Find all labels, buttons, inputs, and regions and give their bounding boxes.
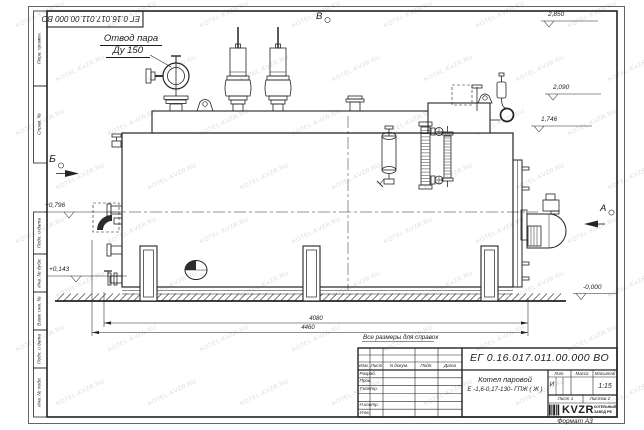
drawing-page: KOTEL-KVZR.RUKOTEL-KVZR.RUKOTEL-KVZR.RUK…: [0, 0, 644, 430]
side-label-6: Инв. № подл.: [38, 377, 43, 407]
safety-valve-2: [265, 27, 291, 111]
burner: [521, 194, 566, 248]
stamp-top-number: ЕГ 0.16.017.011.00.000 ВО: [50, 14, 140, 22]
lifting-lug-left: [197, 100, 213, 112]
kvzr-logo-sub2: ЗАВОД РФ: [594, 411, 612, 415]
elevation-2850: 2,850: [548, 12, 564, 19]
side-label-4: Взам. инв. №: [38, 296, 43, 326]
col-data: Дата: [438, 364, 462, 369]
mass-header: Масса: [571, 372, 593, 376]
side-label-3: Инв. № дубл.: [38, 258, 43, 288]
left-wall-fittings: [93, 134, 122, 285]
elevation-0143: +0,143: [49, 267, 69, 274]
side-label-5: Подп. и дата: [38, 334, 43, 364]
row-nkontr: Н.контр.: [360, 403, 379, 408]
level-gauge-2: [442, 126, 453, 187]
boiler-shell: [108, 116, 538, 294]
kvzr-logo-text: KVZR: [562, 405, 594, 416]
lit-value: И: [548, 382, 556, 389]
support-legs: [140, 246, 498, 301]
title-doc-number: ЕГ 0.16.017.011.00.000 ВО: [464, 353, 615, 364]
view-label-a: А: [600, 204, 606, 214]
view-label-b: Б: [49, 154, 56, 165]
row-prov: Пров.: [360, 379, 372, 384]
steam-outlet-label-line1: Отвод пара: [100, 34, 162, 46]
steam-outlet-valve: [146, 55, 189, 111]
scale-value: 1:15: [593, 383, 617, 390]
sheet-number: Лист 1: [548, 397, 583, 402]
reference-note: Все размеры для справок: [363, 335, 438, 341]
side-label-2: Подп. и дата: [38, 218, 43, 248]
elevation-0796: +0,796: [45, 203, 65, 210]
row-razrab: Разраб.: [360, 372, 377, 377]
kvzr-logo-sub1: КОТЕЛЬНЫЙ: [594, 406, 616, 410]
boiler-drawing: [0, 0, 644, 430]
product-name: Котел паровой: [463, 376, 547, 384]
sheets-total: Листов 2: [583, 397, 617, 402]
elevation-1746: 1,746: [541, 117, 557, 124]
side-label-1: Справ. №: [38, 113, 43, 135]
col-ndoc: N докум.: [383, 364, 415, 369]
steam-outlet-label-line2: Ду 150: [106, 46, 150, 58]
product-type: Е -1,6-0,17-130- ГПЖ ( Ж ): [462, 387, 548, 393]
elevation-marks: [44, 21, 617, 300]
safety-valve-1: [225, 27, 251, 111]
dim-4080: 4080: [304, 316, 328, 322]
row-tkontr: Т.контр.: [360, 387, 379, 392]
row-utv: Утв.: [360, 411, 370, 416]
col-izm: Изм.: [358, 364, 370, 369]
dim-4460: 4460: [296, 325, 320, 331]
drum-nozzle: [346, 96, 364, 111]
kvzr-logo-barcode: [549, 405, 559, 416]
col-podp: Подп.: [415, 364, 438, 369]
col-list: Лист: [370, 364, 383, 369]
elevation-2090: 2,090: [553, 85, 569, 92]
elevation-0000: -0,000: [583, 285, 601, 292]
format-note: Формат А3: [545, 419, 605, 426]
lit-header: Лит.: [548, 372, 571, 376]
water-column: [377, 126, 396, 187]
manhole: [185, 261, 207, 280]
side-label-0: Перв. примен.: [38, 32, 43, 64]
steam-drum: [152, 103, 490, 133]
view-label-v: В: [316, 12, 322, 22]
scale-header: Масштаб: [593, 372, 617, 376]
